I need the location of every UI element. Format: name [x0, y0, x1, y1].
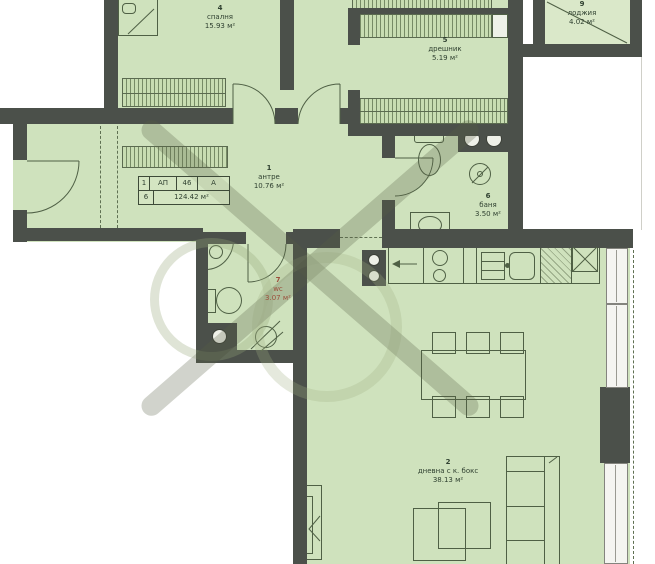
shelf-hatch-hallway — [122, 146, 228, 168]
window-frame-line — [616, 250, 617, 302]
room-label-living: 2 дневна с к. бокс 38.13 м² — [404, 458, 492, 485]
counter-divider — [463, 246, 464, 284]
coffee-table — [438, 502, 491, 549]
dining-table — [421, 350, 526, 400]
opening-dash — [117, 126, 118, 228]
washing-machine-door — [212, 329, 227, 344]
window — [606, 304, 628, 388]
room-label-wc: 7 wc 3.07 м² — [250, 276, 306, 303]
room-label-loggia: 9 лоджия 4.02 м² — [552, 0, 612, 27]
sofa-back-line — [544, 456, 545, 564]
wardrobe-hatch-bedroom — [122, 78, 226, 107]
sink-faucet — [505, 263, 510, 268]
room-hallway — [13, 108, 395, 242]
room-label-bathroom: 6 баня 3.50 м² — [458, 192, 518, 219]
sofa-armrest-line — [506, 471, 545, 472]
washbasin-bowl — [209, 245, 223, 259]
sink-drainer-line — [481, 261, 505, 262]
wall-segment — [382, 229, 633, 248]
stove-burner — [432, 250, 448, 266]
opening-dash — [100, 126, 101, 228]
chair — [466, 332, 490, 354]
corner-cabinet — [540, 246, 572, 284]
sink-drainer-line — [481, 270, 505, 271]
wall-segment — [348, 8, 522, 14]
wall-segment — [600, 387, 630, 463]
water-heater-dial — [368, 254, 380, 266]
wall-segment — [348, 124, 508, 136]
sink-drainer — [481, 252, 505, 280]
chair — [466, 396, 490, 418]
wall-segment — [104, 0, 118, 112]
wall-segment — [275, 108, 298, 124]
sink-bowl — [509, 252, 535, 280]
sofa-seat-divider — [506, 540, 545, 541]
wall-segment — [523, 44, 642, 57]
window-frame-line — [615, 465, 616, 562]
chair — [500, 396, 524, 418]
counter-divider — [476, 246, 477, 284]
sofa — [506, 456, 560, 564]
wc-toilet-bowl — [216, 287, 242, 314]
window — [604, 463, 628, 564]
wall-segment — [630, 0, 642, 57]
balcony-dashed-line — [633, 250, 634, 564]
window — [606, 248, 628, 304]
info-table: 1 АП 46 А 6 124.42 м² — [138, 176, 230, 205]
counter-divider — [423, 246, 424, 284]
wall-segment — [0, 108, 233, 124]
wall-segment — [196, 232, 208, 363]
info-table-row: 6 124.42 м² — [139, 190, 229, 204]
room-label-bedroom: 4 спалня 15.93 м² — [192, 4, 248, 31]
wall-segment — [382, 124, 395, 158]
room-label-hallway: 1 антре 10.76 м² — [240, 164, 298, 191]
small-cabinet — [492, 14, 508, 38]
stove-burner — [433, 269, 446, 282]
water-heater-dial — [368, 270, 380, 282]
pillow — [122, 3, 136, 14]
chair — [432, 332, 456, 354]
shower-drain — [255, 326, 277, 348]
wall-segment — [196, 350, 307, 363]
fridge-box — [572, 246, 598, 272]
floor-plan: 4 спалня 15.93 м² 5 дрешник 5.19 м² 9 ло… — [0, 0, 655, 564]
chair — [500, 332, 524, 354]
info-table-row: 1 АП 46 А — [139, 177, 229, 190]
opening-dash — [340, 237, 382, 238]
toilet-bowl — [418, 144, 441, 176]
wardrobe-hatch-top-cut — [352, 0, 492, 8]
chair — [432, 396, 456, 418]
wardrobe-hatch-closet-top — [352, 14, 492, 38]
floor-drain-center — [477, 171, 483, 177]
window-frame-line — [616, 306, 617, 386]
wall-segment — [280, 0, 294, 90]
wardrobe-hatch-closet-bottom — [352, 98, 508, 124]
room-label-closet: 5 дрешник 5.19 м² — [415, 36, 475, 63]
building-edge-line — [641, 57, 642, 230]
wall-segment — [13, 124, 27, 160]
wall-segment — [13, 228, 203, 241]
sofa-seat-divider — [506, 506, 545, 507]
